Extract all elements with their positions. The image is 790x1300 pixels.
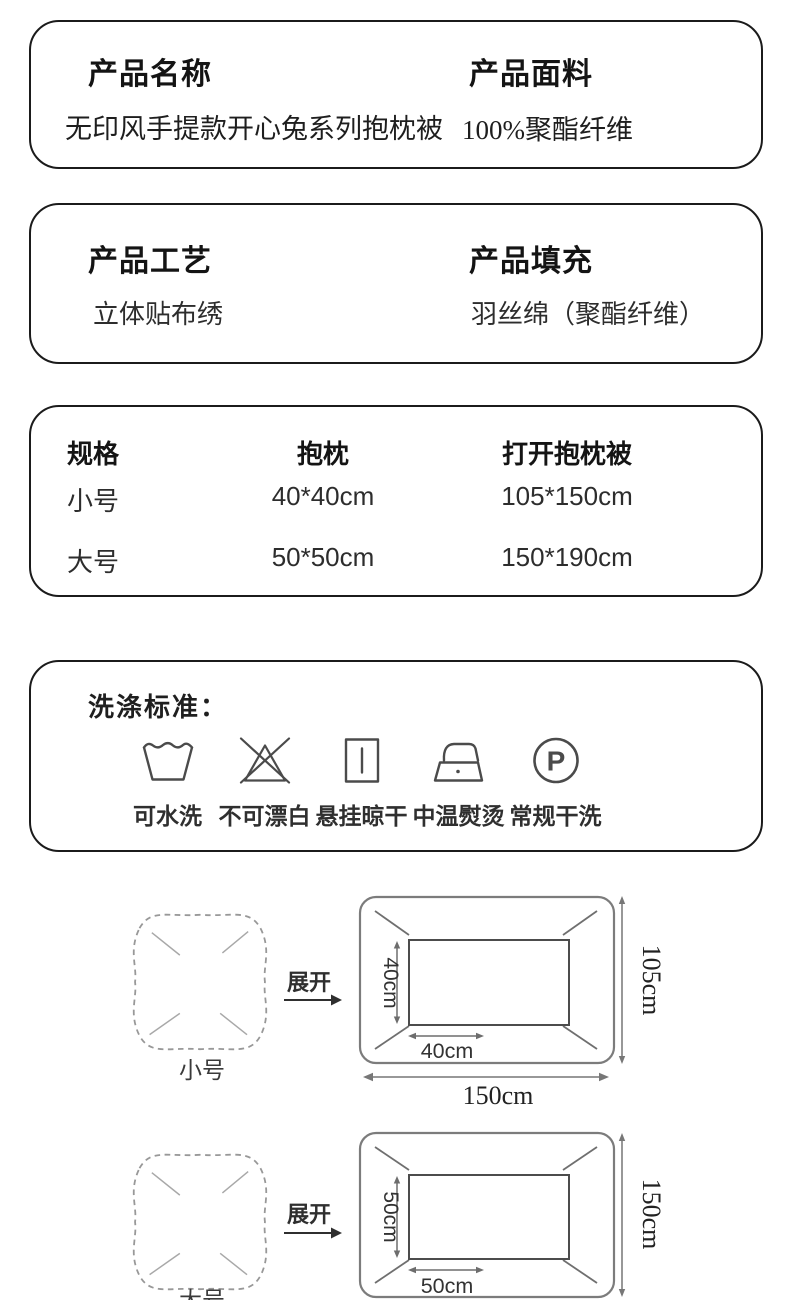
wash-item-iron-medium: 中温熨烫: [410, 732, 507, 831]
pillow-col-header: 抱枕: [199, 434, 447, 471]
outer-height-dimension: [619, 896, 625, 1064]
inner-height-label: 40cm: [379, 957, 402, 1008]
opened-quilt-col-header: 打开抱枕被: [444, 434, 690, 471]
wash-item-no-bleach: 不可漂白: [216, 732, 313, 831]
wash-item-water-washable: 可水洗: [119, 732, 216, 831]
no-bleach-icon: [234, 732, 296, 789]
wash-item-dry-clean: P 常规干洗: [507, 732, 604, 831]
wash-item-label: 悬挂晾干: [316, 797, 408, 831]
product-spec-sheet: 产品名称 无印风手提款开心兔系列抱枕被 产品面料 100%聚酯纤维 产品工艺 立…: [0, 0, 790, 1300]
iron-medium-icon: [428, 732, 490, 789]
washing-icons-row: 可水洗 不可漂白: [119, 732, 604, 831]
washing-standards-title: 洗涤标准：: [88, 687, 228, 724]
card-craft-filling: 产品工艺 立体贴布绣 产品填充 羽丝绵（聚酯纤维）: [29, 203, 763, 364]
wash-item-hang-dry: 悬挂晾干: [313, 732, 410, 831]
wash-item-label: 常规干洗: [510, 797, 602, 831]
card-size-table: 规格 抱枕 打开抱枕被 小号 40*40cm 105*150cm 大号 50*5…: [29, 405, 763, 597]
table-row-large-size: 大号: [67, 542, 197, 579]
outer-width-label: 150cm: [463, 1081, 534, 1110]
product-name-value: 无印风手提款开心兔系列抱枕被: [65, 107, 443, 146]
product-craft-value: 立体贴布绣: [93, 294, 223, 331]
unfold-arrow-label: 展开: [287, 970, 331, 995]
large-size-unfold-diagram: 大号 展开 50cm 50cm: [0, 1110, 790, 1300]
inner-width-label: 50cm: [421, 1274, 474, 1298]
pillow-large-illustration: [134, 1155, 267, 1290]
wash-item-label: 中温熨烫: [413, 797, 505, 831]
hang-dry-icon: [331, 732, 393, 789]
pillow-pocket-outline-small: [409, 940, 569, 1025]
product-name-label: 产品名称: [88, 49, 212, 93]
card-washing-standards: 洗涤标准： 可水洗 不: [29, 660, 763, 852]
wash-item-label: 不可漂白: [219, 797, 311, 831]
outer-height-label: 150cm: [637, 1179, 666, 1250]
product-filling-label: 产品填充: [469, 236, 593, 280]
wash-item-label: 可水洗: [133, 797, 202, 831]
dry-clean-icon: P: [525, 732, 587, 789]
spec-col-header: 规格: [67, 434, 197, 471]
table-row-small-quilt: 105*150cm: [444, 481, 690, 512]
pillow-large-label: 大号: [179, 1287, 225, 1300]
pillow-pocket-outline-large: [409, 1175, 569, 1259]
table-row-small-pillow: 40*40cm: [199, 481, 447, 512]
outer-width-dimension: [363, 1073, 609, 1081]
pillow-small-illustration: [134, 915, 267, 1050]
product-filling-value: 羽丝绵（聚酯纤维）: [471, 294, 705, 331]
table-row-large-pillow: 50*50cm: [199, 542, 447, 573]
pillow-small-label: 小号: [179, 1057, 225, 1083]
dry-clean-p-symbol: P: [546, 746, 565, 777]
product-fabric-label: 产品面料: [469, 49, 593, 93]
inner-width-label: 40cm: [421, 1039, 474, 1063]
card-product-name-fabric: 产品名称 无印风手提款开心兔系列抱枕被 产品面料 100%聚酯纤维: [29, 20, 763, 169]
outer-height-dimension: [619, 1133, 625, 1297]
unfold-arrow: [284, 1228, 342, 1239]
small-size-unfold-diagram: 小号 展开 40cm 40cm: [0, 878, 790, 1110]
product-fabric-value: 100%聚酯纤维: [462, 108, 633, 147]
unfold-arrow: [284, 995, 342, 1006]
unfold-arrow-label: 展开: [287, 1202, 331, 1227]
product-craft-label: 产品工艺: [88, 236, 212, 280]
table-row-large-quilt: 150*190cm: [444, 542, 690, 573]
outer-height-label: 105cm: [637, 945, 666, 1016]
table-row-small-size: 小号: [67, 481, 197, 518]
inner-height-label: 50cm: [379, 1191, 402, 1242]
wash-tub-icon: [137, 732, 199, 789]
